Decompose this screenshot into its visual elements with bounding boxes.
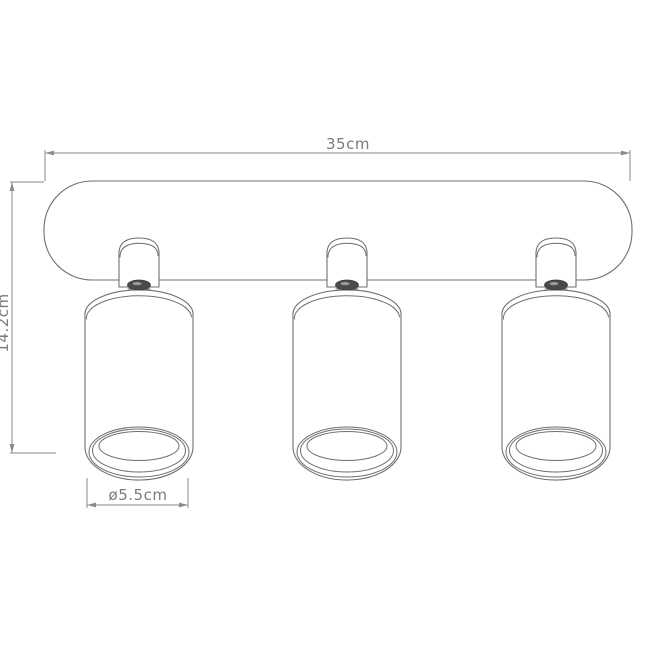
width-dimension: 35cm	[45, 135, 630, 181]
diameter-arrow-left	[87, 503, 96, 508]
width-arrow-left	[45, 151, 54, 156]
drawing-canvas: 35cm 14.2cm ø5.5cm	[0, 0, 650, 650]
spotlight-fixture-technical-drawing: 35cm 14.2cm ø5.5cm	[0, 0, 650, 650]
diameter-arrow-right	[179, 503, 188, 508]
height-arrow-bottom	[10, 444, 15, 453]
diameter-dimension: ø5.5cm	[87, 478, 188, 508]
width-dimension-label: 35cm	[326, 135, 370, 153]
height-dimension-label: 14.2cm	[0, 293, 12, 352]
width-arrow-right	[621, 151, 630, 156]
height-arrow-top	[10, 182, 15, 191]
diameter-dimension-label: ø5.5cm	[109, 486, 168, 504]
